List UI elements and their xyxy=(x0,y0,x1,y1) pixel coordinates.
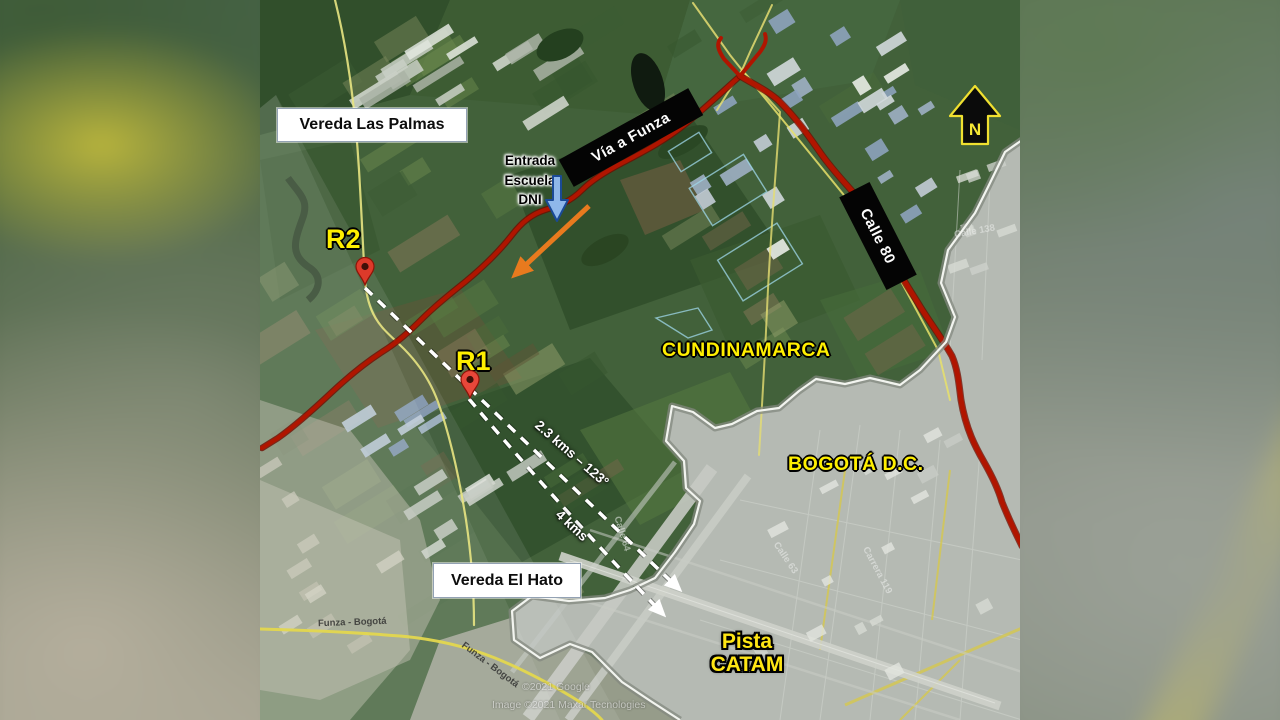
compass-n-letter: N xyxy=(969,120,981,139)
pista-catam-label: Pista CATAM xyxy=(685,630,809,676)
blurred-right-backdrop xyxy=(998,0,1280,720)
region-label-cundinamarca: CUNDINAMARCA xyxy=(662,339,830,362)
blurred-left-backdrop xyxy=(0,0,282,720)
region-label-bogota-dc: BOGOTÁ D.C. xyxy=(788,453,924,476)
google-attribution: ©2021 Google xyxy=(522,681,590,693)
satellite-map: Vereda Las Palmas Vía a Funza Calle 80 E… xyxy=(260,0,1020,720)
maxar-attribution: Image ©2021 Maxar Tecnologies xyxy=(492,699,645,711)
place-box-vereda-el-hato: Vereda El Hato xyxy=(433,563,581,598)
marker-label-r2: R2 xyxy=(326,224,361,255)
screenshot-stage: Vereda Las Palmas Vía a Funza Calle 80 E… xyxy=(0,0,1280,720)
place-box-vereda-las-palmas: Vereda Las Palmas xyxy=(277,108,467,142)
